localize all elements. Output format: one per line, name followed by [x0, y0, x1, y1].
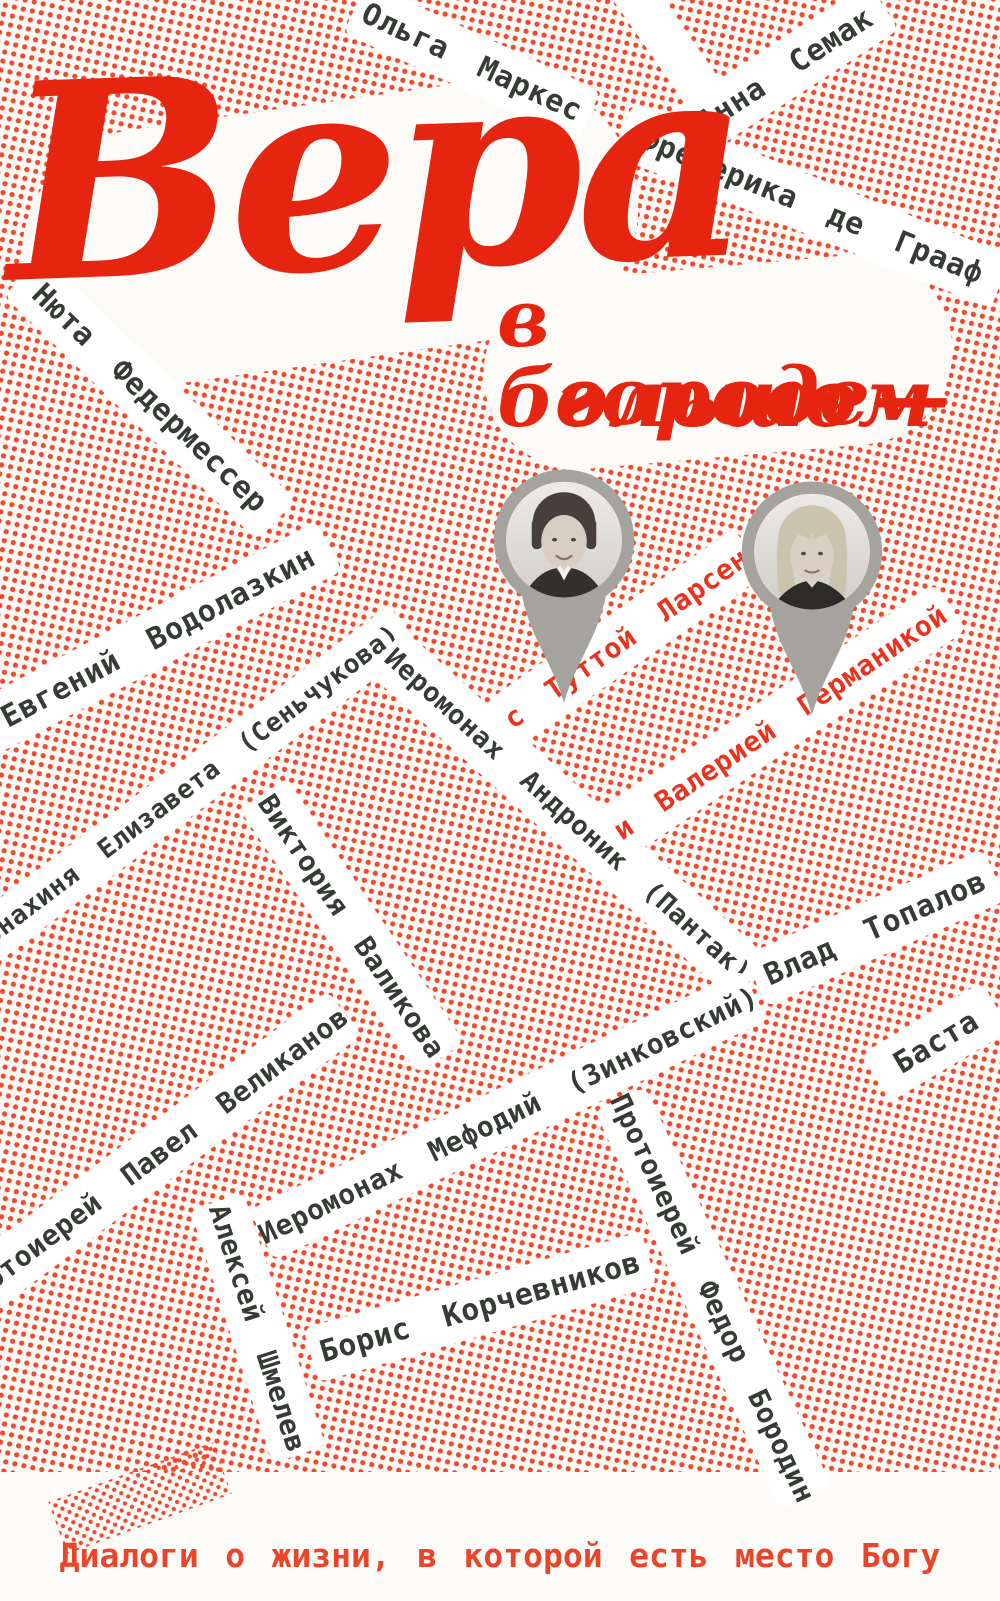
map-pin-icon: [736, 472, 888, 730]
book-title: Вера: [2, 31, 747, 315]
book-cover: Ольга Маркес Анна Семак Фредерика де Гра…: [0, 0, 1000, 1601]
map-pin-icon: [488, 460, 640, 718]
book-subtitle-line2: городе—: [556, 356, 950, 436]
cover-tagline: Диалоги о жизни, в которой есть место Бо…: [0, 1536, 1000, 1575]
